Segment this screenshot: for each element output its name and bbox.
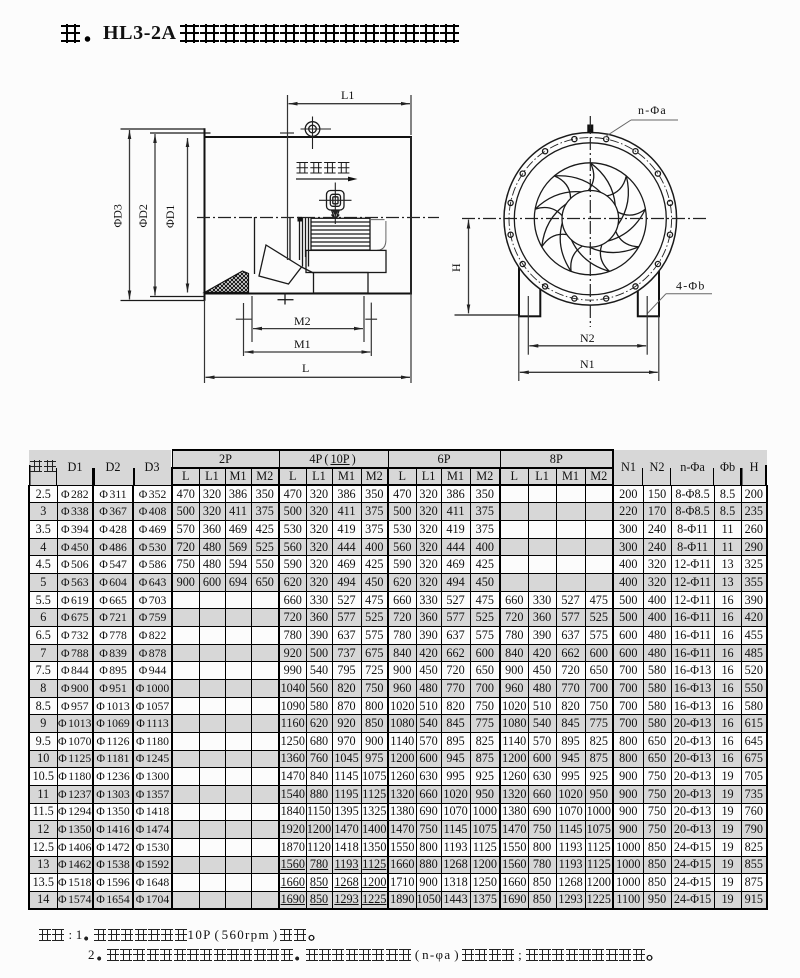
svg-text:n-Φa: n-Φa — [638, 103, 667, 117]
svg-text:ΦD1: ΦD1 — [163, 205, 177, 228]
svg-text:M1: M1 — [294, 337, 311, 351]
svg-text:ΦD2: ΦD2 — [136, 204, 150, 227]
svg-text:ΦD3: ΦD3 — [111, 204, 125, 227]
svg-text:L1: L1 — [341, 88, 354, 102]
svg-text:L: L — [302, 361, 309, 375]
svg-text:M2: M2 — [294, 314, 311, 328]
svg-text:N1: N1 — [580, 357, 595, 371]
svg-text:4-Φb: 4-Φb — [676, 279, 706, 293]
svg-text:H: H — [449, 263, 463, 272]
svg-text:N2: N2 — [580, 331, 595, 345]
